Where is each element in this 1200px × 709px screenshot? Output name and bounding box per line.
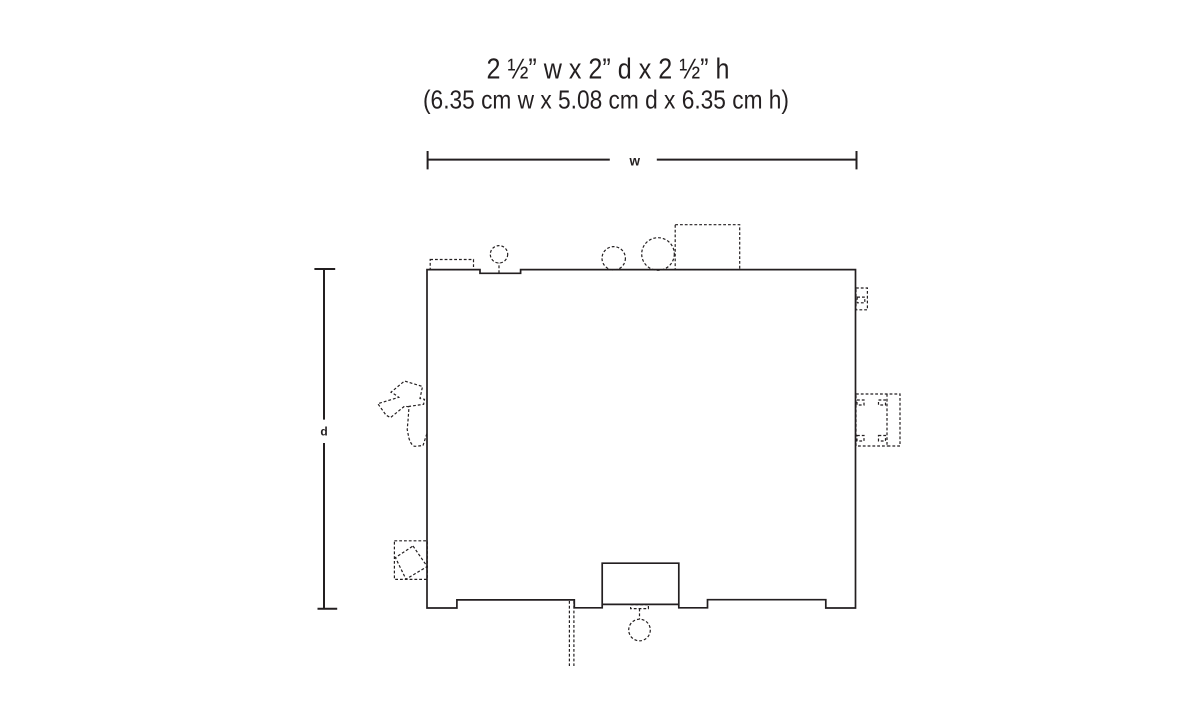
svg-text:(6.35 cm w x 5.08 cm d x 6.35: (6.35 cm w x 5.08 cm d x 6.35 cm h) bbox=[423, 85, 789, 115]
svg-text:w: w bbox=[628, 153, 640, 168]
svg-text:2 ½” w x 2” d x 2 ½” h: 2 ½” w x 2” d x 2 ½” h bbox=[487, 54, 730, 86]
svg-text:d: d bbox=[320, 425, 327, 439]
